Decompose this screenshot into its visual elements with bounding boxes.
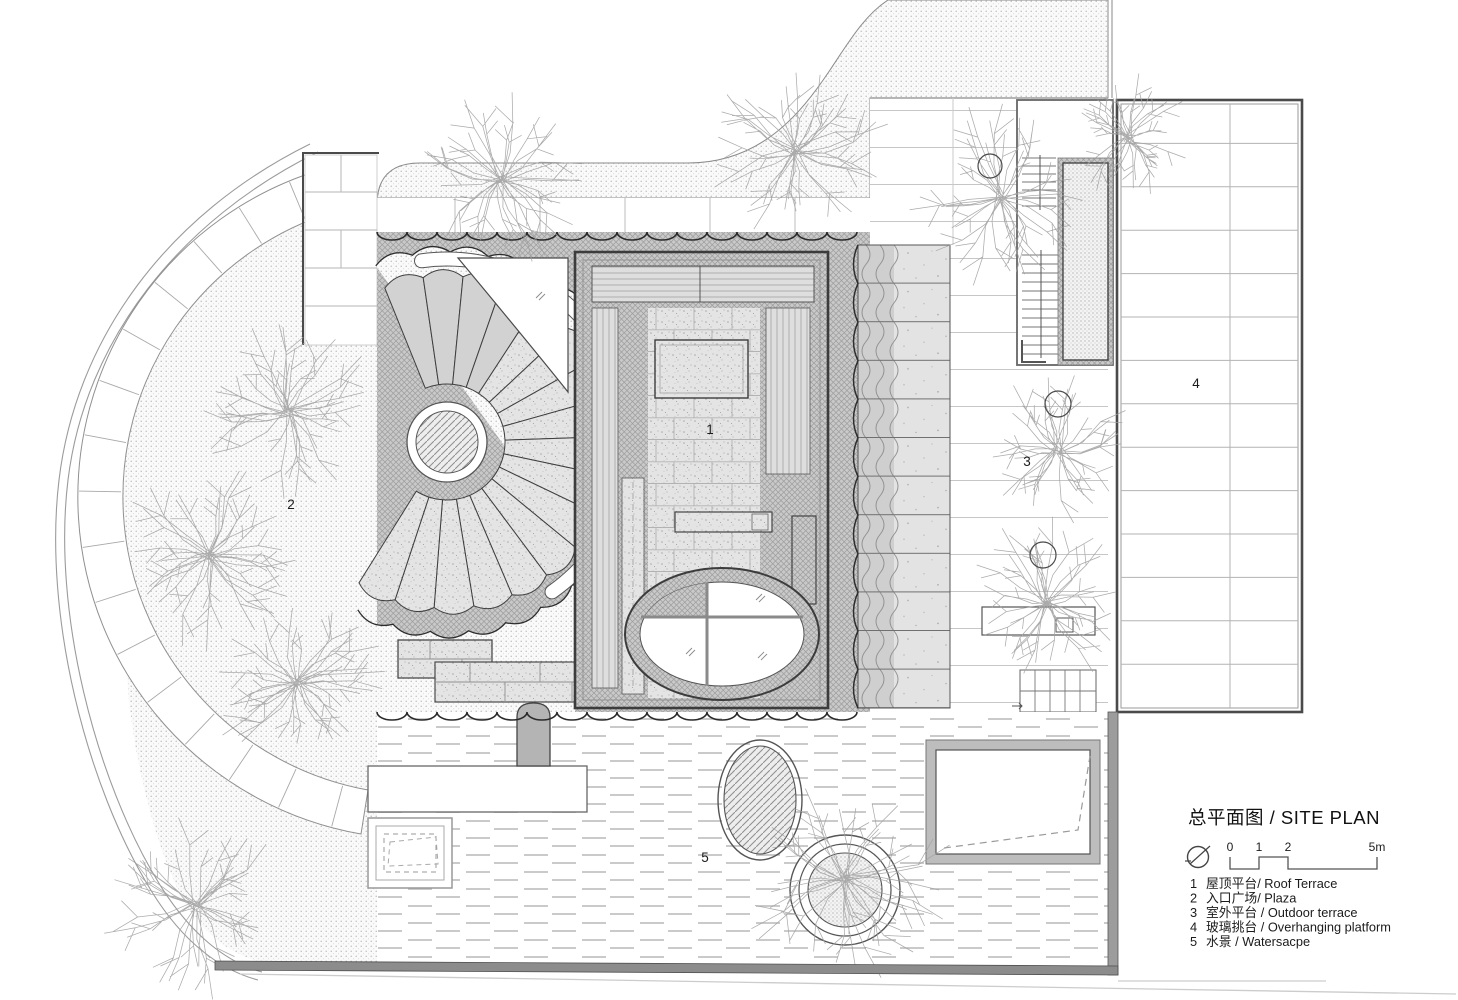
legend-item-label: 室外平台 / Outdoor terrace xyxy=(1206,905,1357,920)
center-plinth xyxy=(655,340,748,398)
scale-tick-2: 2 xyxy=(1285,840,1292,854)
entry-walkway-column xyxy=(303,153,379,345)
oval-skylight xyxy=(625,568,819,700)
legend-items: 1 屋顶平台/ Roof Terrace 2 入口广场/ Plaza 3 室外平… xyxy=(1190,876,1391,949)
pier-pillar xyxy=(517,703,550,766)
legend-item-label: 玻璃挑台 / Overhanging platform xyxy=(1206,920,1391,935)
drawing-title: 总平面图 / SITE PLAN xyxy=(1188,807,1380,828)
scale-bar: 0 1 2 5m xyxy=(1227,840,1386,869)
site-plan-canvas: 1 2 3 4 5 总平面图 / SITE PLAN 0 1 2 5m 1 屋顶… xyxy=(0,0,1458,1000)
legend-item-label: 入口广场/ Plaza xyxy=(1206,891,1297,906)
waterscape xyxy=(368,703,1118,975)
dotted-skylight xyxy=(1063,163,1108,360)
terrace-bench-long xyxy=(675,512,772,532)
site-plan-drawing: 1 2 3 4 5 总平面图 / SITE PLAN 0 1 2 5m 1 屋顶… xyxy=(0,0,1458,1000)
deck-band xyxy=(592,266,814,302)
deck-strip-right xyxy=(766,308,810,474)
legend-item-num: 5 xyxy=(1190,934,1197,949)
legend: 总平面图 / SITE PLAN 0 1 2 5m 1 屋顶平台/ Roof T… xyxy=(1185,807,1391,949)
legend-item-num: 4 xyxy=(1190,920,1197,935)
water-slab xyxy=(368,766,587,812)
legend-item-num: 3 xyxy=(1190,905,1197,920)
label-waterscape: 5 xyxy=(701,850,709,865)
scale-tick-5m: 5m xyxy=(1369,840,1386,854)
scale-tick-0: 0 xyxy=(1227,840,1234,854)
planter-box xyxy=(368,818,452,888)
terrace-steps xyxy=(1012,670,1096,712)
legend-item-num: 2 xyxy=(1190,891,1197,906)
label-roof-terrace: 1 xyxy=(706,422,714,437)
water-right-edge xyxy=(1108,712,1118,975)
legend-item-label: 屋顶平台/ Roof Terrace xyxy=(1206,876,1337,891)
pool xyxy=(926,740,1100,864)
legend-item-label: 水景 / Watersacpe xyxy=(1206,934,1310,949)
roof-terrace-block xyxy=(575,252,828,708)
overhanging-platform xyxy=(1117,100,1302,712)
north-arrow-icon xyxy=(1185,846,1210,868)
wave-step-band xyxy=(854,245,951,708)
legend-item-num: 1 xyxy=(1190,876,1197,891)
label-outdoor-terrace: 3 xyxy=(1023,454,1031,469)
scale-tick-1: 1 xyxy=(1256,840,1263,854)
fan-tree-pit xyxy=(407,402,487,482)
deck-strip-left xyxy=(592,308,618,688)
label-overhanging-platform: 4 xyxy=(1192,376,1200,391)
label-plaza: 2 xyxy=(287,497,295,512)
bottom-road-bar xyxy=(215,961,1456,994)
hatched-island xyxy=(718,740,802,860)
